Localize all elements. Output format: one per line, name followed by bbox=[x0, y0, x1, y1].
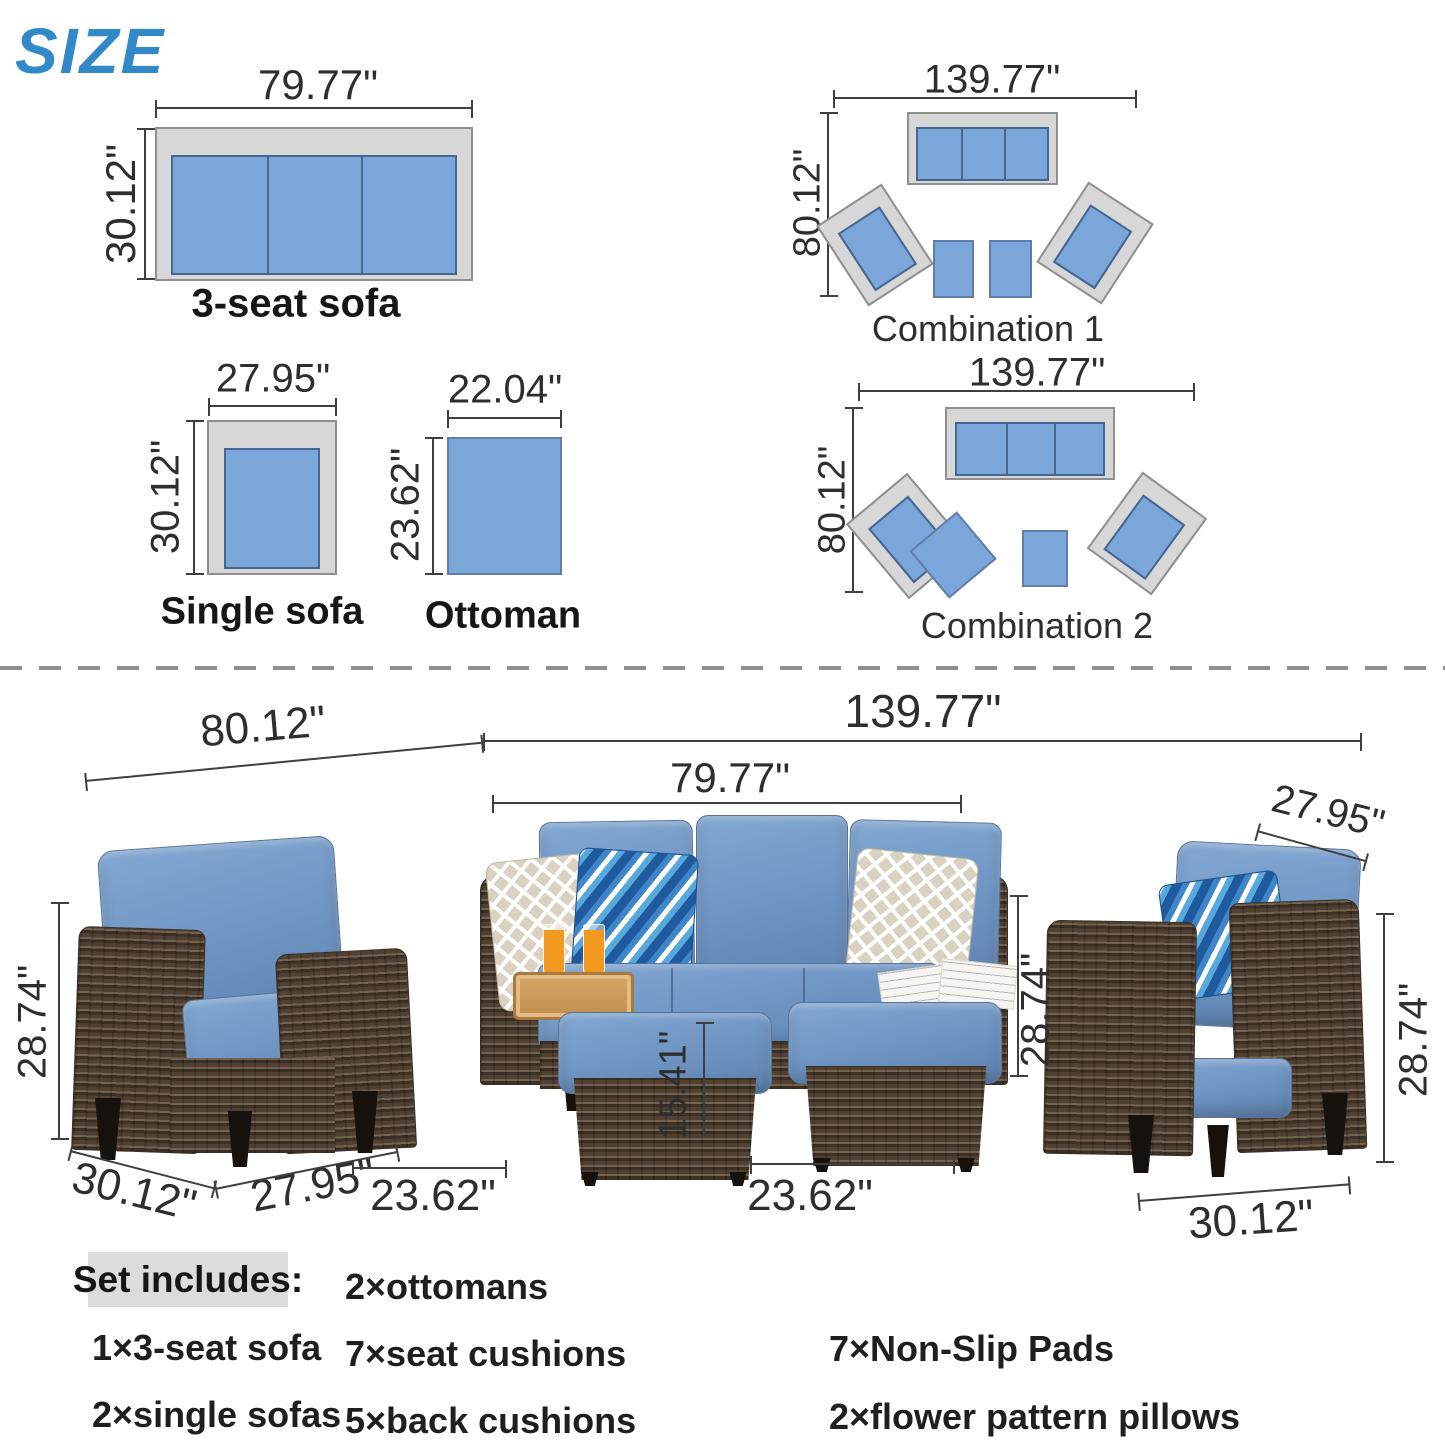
right-chair-left-arm bbox=[1043, 920, 1197, 1157]
sofa3-label: 3-seat sofa bbox=[192, 282, 401, 327]
single-depth-dimline bbox=[193, 420, 195, 575]
cushion-divider bbox=[961, 129, 963, 179]
sofa-width-dim: 79.77" bbox=[670, 754, 790, 802]
sofa3-depth-dim: 30.12" bbox=[97, 144, 145, 264]
left-chair-base bbox=[170, 1058, 335, 1153]
sofa-width-dimline bbox=[492, 802, 962, 804]
set-width-dim: 139.77" bbox=[844, 684, 1001, 738]
size-infographic: SIZE 79.77" 30.12" 3-seat sofa 139.77" 8… bbox=[0, 0, 1445, 1445]
combo1-ottoman1-topview bbox=[933, 240, 974, 298]
ottoman-width-dimline bbox=[447, 417, 562, 419]
right-ottoman-photo bbox=[788, 1002, 1003, 1172]
sofa3-depth-dimline bbox=[144, 128, 146, 280]
set-item: 7×Non-Slip Pads bbox=[829, 1328, 1114, 1370]
combo1-left-chair-topview bbox=[816, 184, 934, 307]
right-ottoman-base bbox=[800, 1066, 992, 1166]
right-ottoman-width-dim: 23.62" bbox=[747, 1171, 873, 1221]
combo1-right-chair-topview bbox=[1036, 182, 1154, 305]
left-ottoman-width-dim: 23.62" bbox=[370, 1171, 496, 1221]
left-chair-height-dim: 28.74" bbox=[11, 965, 56, 1079]
combo1-width-dim: 139.77" bbox=[924, 58, 1061, 103]
set-item: 5×back cushions bbox=[345, 1400, 636, 1442]
cushion-divider bbox=[267, 157, 269, 273]
right-chair-depth-dim: 30.12" bbox=[1187, 1191, 1316, 1250]
juice-glass-bowl bbox=[583, 924, 605, 978]
juice-glass-bowl bbox=[543, 924, 565, 978]
cushion-divider bbox=[361, 157, 363, 273]
set-item: 2×single sofas bbox=[92, 1394, 341, 1436]
ottoman-label: Ottoman bbox=[425, 595, 581, 638]
chair-topview-cushion bbox=[1053, 204, 1133, 289]
combo2-width-dim: 139.77" bbox=[969, 351, 1106, 396]
right-ottoman-width-dimline bbox=[750, 1163, 955, 1165]
combo1-label: Combination 1 bbox=[872, 308, 1104, 350]
ottoman-height-dimline bbox=[703, 1022, 705, 1137]
chair-topview-cushion bbox=[838, 206, 918, 291]
combo2-depth-dimline bbox=[852, 407, 854, 593]
cushion-divider bbox=[1054, 424, 1056, 474]
ottoman-depth-dimline bbox=[432, 437, 434, 575]
sofa-height-dimline bbox=[1017, 895, 1019, 1077]
combo1-sofa-cushion bbox=[916, 127, 1049, 181]
combo2-label: Combination 2 bbox=[921, 605, 1153, 647]
combo2-center-ottoman-topview bbox=[1022, 530, 1068, 587]
combo1-depth-dimline bbox=[827, 112, 829, 297]
cushion-divider bbox=[1004, 129, 1006, 179]
right-chair-height-dim: 28.74" bbox=[1392, 983, 1437, 1097]
combo1-width-dimline bbox=[833, 97, 1137, 99]
sofa3-topview bbox=[155, 127, 473, 281]
combo2-sofa-cushion bbox=[955, 422, 1105, 476]
page-title: SIZE bbox=[15, 14, 165, 88]
set-includes-heading: Set includes: bbox=[73, 1259, 303, 1301]
set-item: 1×3-seat sofa bbox=[92, 1327, 321, 1369]
right-chair-photo bbox=[1045, 843, 1363, 1175]
set-width-dimline bbox=[483, 740, 1362, 742]
combo2-sofa-topview bbox=[945, 407, 1115, 480]
sofa3-width-dim: 79.77" bbox=[258, 61, 378, 109]
left-ottoman-width-dimline bbox=[352, 1167, 507, 1169]
section-divider bbox=[0, 666, 1445, 670]
cushion-divider bbox=[1006, 424, 1008, 474]
single-depth-dim: 30.12" bbox=[144, 440, 189, 554]
ottoman-height-dim: 15.41" bbox=[653, 1031, 696, 1140]
left-chair-height-dimline bbox=[58, 902, 60, 1140]
sofa-height-dim: 28.74" bbox=[1014, 953, 1059, 1067]
combo2-width-dimline bbox=[858, 390, 1195, 392]
chair-leg bbox=[1203, 1125, 1233, 1177]
set-depth-dim: 80.12" bbox=[198, 697, 328, 758]
ottoman-topview bbox=[447, 437, 562, 575]
single-topview-cushion bbox=[224, 448, 320, 569]
combo1-depth-dim: 80.12" bbox=[787, 149, 830, 258]
sofa3-width-dimline bbox=[155, 107, 473, 109]
combo2-depth-dim: 80.12" bbox=[812, 446, 855, 555]
single-width-dim: 27.95" bbox=[216, 357, 330, 402]
single-topview bbox=[207, 420, 337, 575]
ottoman-depth-dim: 23.62" bbox=[384, 448, 429, 562]
set-item: 7×seat cushions bbox=[345, 1333, 626, 1375]
chair-topview-cushion bbox=[1103, 494, 1185, 580]
sofa3-topview-cushion bbox=[171, 155, 457, 275]
single-width-dimline bbox=[208, 405, 337, 407]
combo1-sofa-topview bbox=[907, 112, 1058, 185]
combo1-ottoman2-topview bbox=[989, 240, 1032, 298]
set-item: 2×ottomans bbox=[345, 1266, 548, 1308]
single-label: Single sofa bbox=[161, 591, 364, 634]
combo2-right-chair-topview bbox=[1087, 472, 1208, 596]
set-item: 2×flower pattern pillows bbox=[829, 1396, 1240, 1438]
right-chair-height-dimline bbox=[1383, 913, 1385, 1163]
sofa-back-cushion bbox=[696, 815, 848, 985]
ottoman-width-dim: 22.04" bbox=[448, 368, 562, 413]
left-chair-photo bbox=[75, 843, 410, 1165]
